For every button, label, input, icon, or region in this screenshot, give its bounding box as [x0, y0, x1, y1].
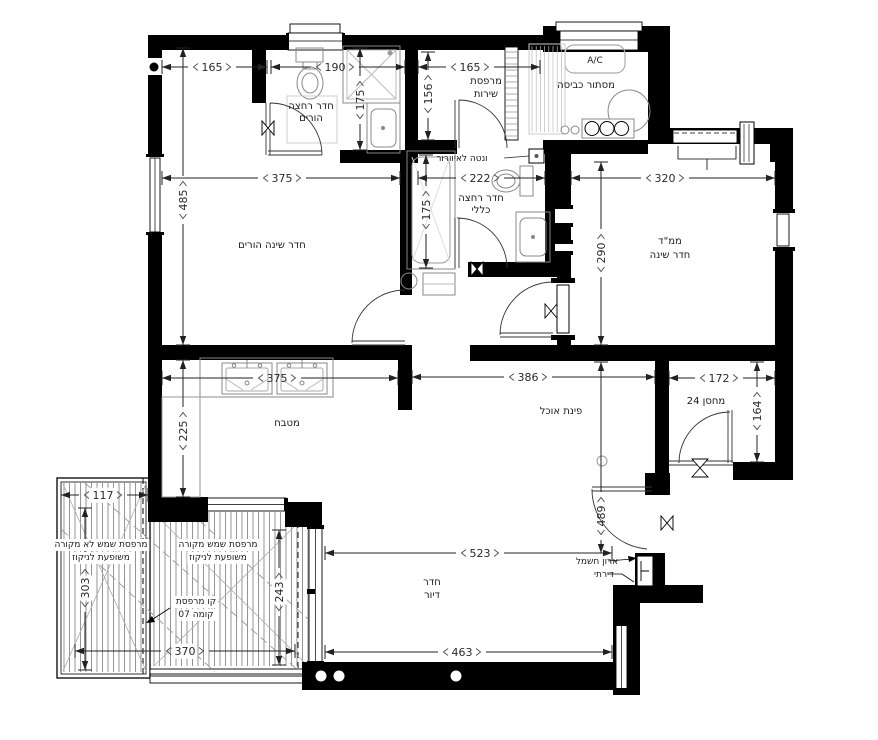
door-symbol-icon	[667, 516, 673, 530]
label-kitchen: מטבח	[274, 418, 300, 429]
dim-value-kitchen_d: 225	[177, 421, 190, 442]
window-top-bathroom-icon	[286, 24, 345, 50]
dim-value-bedroom_d: 485	[177, 190, 190, 211]
label-electrical: דירתי	[594, 570, 614, 580]
door-symbol-icon	[692, 459, 708, 468]
label-laundry: מסתור כביסה	[557, 80, 615, 91]
dim-living_w: 523	[325, 546, 612, 560]
label-service-balcony: שירות	[474, 89, 498, 100]
toilet-parents-icon	[296, 48, 323, 99]
label-parents-bath: חדר רחצה	[288, 101, 333, 112]
label-balcony-uncovered: משופעת לניקוז	[72, 553, 130, 563]
label-parents-bedroom: חדר שינה הורים	[238, 240, 306, 251]
dim-value-balc1_d: 303	[79, 578, 92, 599]
dim-value-balc1_w: 117	[93, 489, 114, 502]
window-bedroom-left-icon	[146, 154, 164, 235]
sink-general-icon	[516, 212, 550, 262]
dim-balc1_d: 303	[78, 508, 93, 670]
dim-mamad_d: 290	[594, 162, 608, 345]
laundry-pipes-icon	[561, 119, 634, 138]
dim-value-balc2_w: 370	[175, 645, 196, 658]
label-living: דיור	[424, 590, 441, 601]
dim-value-dining_w: 386	[518, 371, 539, 384]
door-stop-icon	[597, 456, 607, 466]
door-parents-bedroom	[352, 290, 405, 345]
walls	[148, 26, 793, 695]
dim-value-kitchen_w: 375	[267, 372, 288, 385]
dim-value-bath1_depth: 175	[354, 90, 367, 111]
label-dining: פינת אוכל	[540, 406, 583, 417]
label-parents-bath: הורים	[299, 113, 323, 124]
window-kitchen-icon	[204, 498, 288, 511]
dim-value-living_w2: 463	[452, 646, 473, 659]
label-electrical: ארון חשמל	[576, 557, 618, 567]
door-symbol-icon	[692, 468, 708, 477]
dim-value-bedroom_w: 375	[272, 172, 293, 185]
label-mamad: ממ"ד	[658, 236, 682, 247]
label-mamad: חדר שינה	[650, 250, 691, 261]
dim-value-service_d: 156	[422, 84, 435, 105]
label-living: חדר	[423, 577, 441, 588]
dim-value-storage_w: 172	[709, 372, 730, 385]
label-storage: מחסן 24	[687, 396, 725, 407]
dim-kitchen_w: 375	[162, 371, 398, 385]
door-general-bath	[455, 218, 507, 268]
label-service-balcony: מרפסת	[470, 76, 502, 87]
label-balcony-uncovered: מרפסת שמש לא מקורה	[54, 540, 147, 550]
dim-value-bath2_tub: 175	[420, 200, 433, 221]
dim-bedroom_w: 375	[162, 171, 400, 185]
door-symbol-icon	[545, 304, 551, 318]
dim-mamad_w: 320	[571, 171, 775, 185]
floor-plan-svg: 1651901751651562221753202903754853752253…	[0, 0, 878, 740]
sink-parents-icon	[367, 103, 400, 153]
window-living-right-icon	[614, 622, 629, 692]
dim-balc1_w: 117	[61, 488, 148, 503]
door-service-balcony	[455, 100, 507, 148]
dim-value-bedroom_top: 165	[202, 61, 223, 74]
louver-window-icon	[505, 47, 518, 140]
vent-icon	[504, 149, 544, 163]
door-symbol-icon	[661, 516, 667, 530]
balcony-covered-sill	[150, 669, 323, 683]
dim-bath1_depth: 175	[353, 48, 367, 150]
dim-living_w2: 463	[325, 645, 612, 659]
dim-storage_w: 172	[669, 371, 775, 385]
dim-value-service_w: 165	[460, 61, 481, 74]
dim-value-living_w: 523	[470, 547, 491, 560]
label-general-bath: חדר רחצה	[458, 193, 503, 204]
dim-bedroom_top: 165	[162, 60, 267, 74]
shower-icon	[343, 46, 400, 103]
dim-dining_w: 386	[412, 370, 655, 384]
door-storage	[669, 410, 733, 465]
window-mamad-top-icon	[673, 130, 737, 170]
slider-living-left-icon	[307, 525, 324, 665]
label-balcony-line: קומה 07	[178, 610, 213, 620]
window-laundry-top-icon	[556, 22, 642, 50]
dim-bedroom_d: 485	[176, 48, 190, 345]
dim-storage_d: 164	[750, 362, 764, 462]
dim-balc2_d: 243	[272, 530, 287, 665]
label-balcony-covered: משופעת לניקוז	[189, 553, 247, 563]
dim-value-hall_d: 489	[595, 506, 608, 527]
dim-bath2_w: 222	[418, 171, 545, 185]
dim-bath2_tub: 175	[419, 155, 433, 268]
wall-drain-icon	[146, 58, 164, 75]
window-mamad-right-icon	[773, 209, 795, 251]
label-vent: ונטה לאיוורור	[436, 154, 487, 164]
dim-value-mamad_w: 320	[655, 172, 676, 185]
pillar-icon	[740, 122, 754, 164]
dim-value-storage_d: 164	[751, 401, 764, 422]
dim-value-mamad_d: 290	[595, 243, 608, 264]
door-symbol-icon	[268, 121, 274, 135]
dim-kitchen_d: 225	[176, 360, 190, 497]
dim-value-balc2_d: 243	[273, 582, 286, 603]
label-general-bath: כללי	[472, 205, 491, 216]
toilet-general-icon	[492, 166, 533, 196]
label-balcony-covered: מרפסת שמש מקורה	[178, 540, 257, 550]
dim-service_w: 165	[418, 60, 540, 74]
door-symbol-icon	[262, 121, 268, 135]
label-balcony-line: קו מרפסת	[176, 597, 216, 607]
dim-value-bath1_top: 190	[325, 61, 346, 74]
dim-value-bath2_w: 222	[470, 172, 491, 185]
label-ac: A/C	[587, 56, 602, 66]
dim-bath1_top: 190	[271, 60, 405, 74]
